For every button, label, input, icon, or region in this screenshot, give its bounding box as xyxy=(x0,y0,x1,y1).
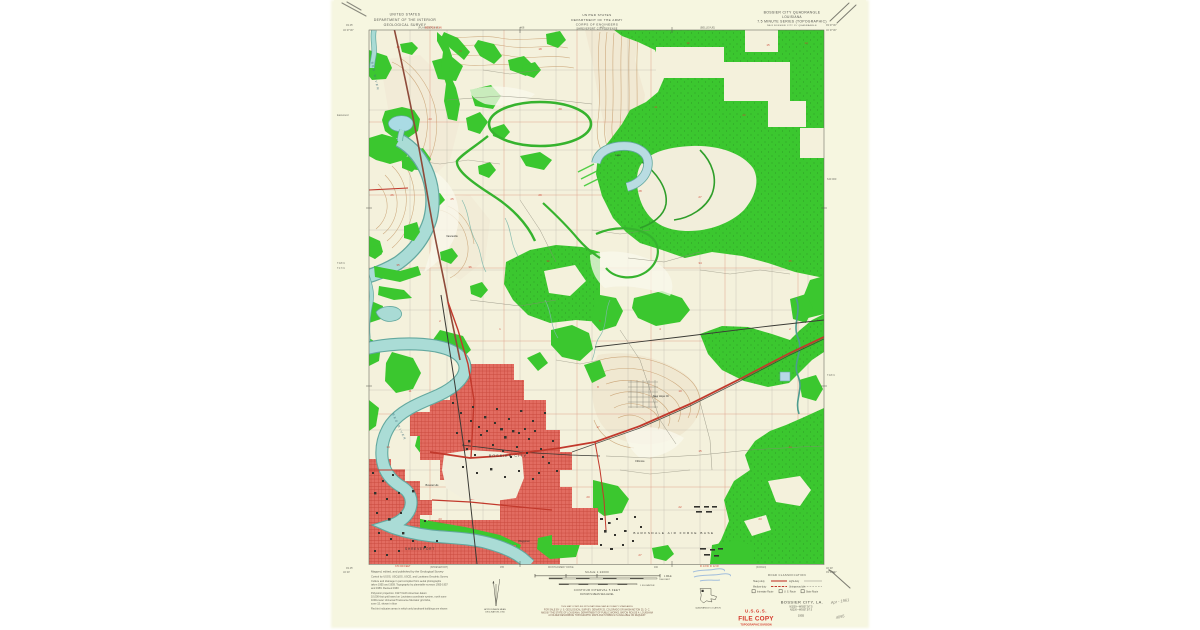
svg-text:FILE COPY: FILE COPY xyxy=(738,615,774,622)
svg-text:10,000-foot grid based on Loui: 10,000-foot grid based on Louisiana coor… xyxy=(371,595,447,599)
svg-text:Waggoner: Waggoner xyxy=(518,539,530,543)
svg-text:Fillmore: Fillmore xyxy=(635,459,645,463)
svg-text:16: 16 xyxy=(686,41,690,45)
svg-text:1000-meter Universal Transvers: 1000-meter Universal Transverse Mercator… xyxy=(371,598,431,602)
svg-text:FOR SALE BY U. S. GEOLOGICAL S: FOR SALE BY U. S. GEOLOGICAL SURVEY, DEN… xyxy=(544,609,650,612)
svg-text:468: 468 xyxy=(520,26,525,30)
svg-text:Control by USGS, USC&GS, USCE,: Control by USGS, USC&GS, USCE, and Louis… xyxy=(371,575,449,579)
svg-text:QUADRANGLE LOCATION: QUADRANGLE LOCATION xyxy=(695,607,721,610)
svg-text:18: 18 xyxy=(538,47,542,51)
svg-text:BOSSIER CITY QUADRANGLE: BOSSIER CITY QUADRANGLE xyxy=(764,11,821,15)
svg-text:27: 27 xyxy=(638,553,642,557)
svg-text:Mapped, edited, and published: Mapped, edited, and published by the Geo… xyxy=(371,570,444,574)
svg-text:taken 1955 and 1959. Topograp: taken 1955 and 1959. Topography by plane… xyxy=(371,583,448,587)
svg-text:34: 34 xyxy=(698,261,702,265)
svg-text:21: 21 xyxy=(654,105,658,109)
svg-text:N3230—W9337.5/7.5: N3230—W9337.5/7.5 xyxy=(790,609,813,611)
svg-text:AND BY THE STATE OF LOUISIANA,: AND BY THE STATE OF LOUISIANA, DEPARTMEN… xyxy=(541,611,653,614)
svg-text:36: 36 xyxy=(468,265,472,269)
svg-text:Light-duty: Light-duty xyxy=(789,580,800,583)
svg-text:T.18 N.: T.18 N. xyxy=(337,261,345,265)
svg-text:32 37'30": 32 37'30" xyxy=(826,28,837,32)
svg-text:28: 28 xyxy=(638,189,642,193)
svg-text:370 000 FEET: 370 000 FEET xyxy=(395,565,411,568)
svg-text:DECLINATION, 1960: DECLINATION, 1960 xyxy=(485,611,505,614)
svg-text:BARKSDALE AIR FORCE BASE: BARKSDALE AIR FORCE BASE xyxy=(633,531,714,535)
svg-text:Unimproved dirt: Unimproved dirt xyxy=(789,586,806,589)
svg-text:32 30': 32 30' xyxy=(343,570,350,574)
svg-text:27: 27 xyxy=(698,195,702,199)
svg-text:7000 FEET: 7000 FEET xyxy=(659,579,671,581)
svg-text:DATUM IS MEAN SEA LEVEL: DATUM IS MEAN SEA LEVEL xyxy=(580,593,614,596)
svg-text:CORPS OF ENGINEERS: CORPS OF ENGINEERS xyxy=(576,23,618,27)
svg-text:23: 23 xyxy=(438,517,442,521)
svg-text:State Route: State Route xyxy=(806,590,819,593)
svg-text:Bossier Hts: Bossier Hts xyxy=(426,483,440,487)
svg-text:Vanceville: Vanceville xyxy=(446,234,458,238)
svg-text:T.18 N.: T.18 N. xyxy=(827,373,835,377)
svg-text:(KORAN): (KORAN) xyxy=(756,566,766,569)
svg-text:A FOLDER DESCRIBING TOPOGRAPHI: A FOLDER DESCRIBING TOPOGRAPHIC MAPS AND… xyxy=(548,614,646,617)
svg-text:New Hope Ch: New Hope Ch xyxy=(653,394,670,398)
svg-text:UNITED STATES: UNITED STATES xyxy=(582,13,611,17)
svg-text:Red tint indicates areas in wh: Red tint indicates areas in which only l… xyxy=(371,607,448,611)
svg-text:460: 460 xyxy=(654,566,659,569)
svg-text:32 30': 32 30' xyxy=(826,566,833,570)
svg-text:THIS MAP COMPLIES WITH NATIONA: THIS MAP COMPLIES WITH NATIONAL MAP ACCU… xyxy=(561,605,633,608)
svg-text:BOSSIER CITY, LA.: BOSSIER CITY, LA. xyxy=(781,600,824,605)
svg-text:Eastwood: Eastwood xyxy=(337,113,349,117)
svg-text:20: 20 xyxy=(558,107,562,111)
svg-text:11: 11 xyxy=(408,389,411,393)
svg-text:BOSSIER CITY: BOSSIER CITY xyxy=(489,454,527,458)
svg-text:14: 14 xyxy=(804,41,808,45)
svg-text:SHREVEPORT: SHREVEPORT xyxy=(405,547,435,551)
svg-text:T.17 N.: T.17 N. xyxy=(337,266,345,270)
svg-text:1955: 1955 xyxy=(798,613,805,617)
svg-text:93 45': 93 45' xyxy=(346,566,353,570)
svg-text:20: 20 xyxy=(586,495,590,499)
svg-text:1 KILOMETER: 1 KILOMETER xyxy=(640,585,655,587)
svg-text:NE/4 BOSSIER CITY 15' QUADRANG: NE/4 BOSSIER CITY 15' QUADRANGLE xyxy=(767,24,817,27)
svg-text:ROAD CLASSIFICATION: ROAD CLASSIFICATION xyxy=(768,573,806,577)
svg-text:Culture and drainage in part c: Culture and drainage in part compiled fr… xyxy=(371,579,442,583)
svg-text:TOPOGRAPHIC DIVISION: TOPOGRAPHIC DIVISION xyxy=(740,622,771,626)
svg-text:17: 17 xyxy=(596,425,600,429)
svg-text:LOUISIANA: LOUISIANA xyxy=(782,15,802,19)
svg-text:1 MILE: 1 MILE xyxy=(664,575,672,578)
svg-text:35: 35 xyxy=(396,263,400,267)
svg-text:DEPARTMENT OF THE INTERIOR: DEPARTMENT OF THE INTERIOR xyxy=(374,18,437,22)
svg-text:23: 23 xyxy=(758,517,762,521)
svg-text:22: 22 xyxy=(742,113,746,117)
svg-text:15: 15 xyxy=(698,449,702,453)
svg-text:U. S. Route: U. S. Route xyxy=(784,590,797,593)
svg-text:93 45': 93 45' xyxy=(346,23,353,27)
svg-text:469: 469 xyxy=(600,26,605,30)
svg-text:DEPARTMENT OF THE ARMY: DEPARTMENT OF THE ARMY xyxy=(571,18,623,22)
svg-text:N3230—W9337.5/7.5: N3230—W9337.5/7.5 xyxy=(790,605,814,608)
svg-text:25: 25 xyxy=(450,197,454,201)
svg-text:Medium-duty: Medium-duty xyxy=(753,586,767,589)
svg-text:13: 13 xyxy=(788,445,792,449)
svg-text:R. 13 W. R. 12 W.: R. 13 W. R. 12 W. xyxy=(700,565,719,568)
svg-text:APPROXIMATE MEAN: APPROXIMATE MEAN xyxy=(484,608,506,611)
svg-text:35: 35 xyxy=(788,259,792,263)
svg-text:(BELLEVUE): (BELLEVUE) xyxy=(700,26,715,30)
svg-text:Heavy-duty: Heavy-duty xyxy=(753,580,765,583)
svg-text:and 1959. Revised 1960: and 1959. Revised 1960 xyxy=(371,586,399,590)
svg-text:SCALE 1:24000: SCALE 1:24000 xyxy=(585,570,609,574)
svg-text:Interstate Route: Interstate Route xyxy=(757,590,774,593)
svg-text:13: 13 xyxy=(458,49,462,53)
svg-text:32: 32 xyxy=(546,259,550,263)
svg-text:BENTON 14 MI.: BENTON 14 MI. xyxy=(425,26,443,29)
svg-text:29: 29 xyxy=(538,193,542,197)
svg-text:455: 455 xyxy=(500,566,505,569)
svg-text:UNITED STATES: UNITED STATES xyxy=(390,13,421,17)
svg-text:Polyconic projection. 1927 No: Polyconic projection. 1927 North America… xyxy=(371,591,427,595)
svg-text:14: 14 xyxy=(396,45,400,49)
svg-text:26: 26 xyxy=(390,193,394,197)
svg-text:MONTGOMERY DRIVE: MONTGOMERY DRIVE xyxy=(548,566,574,569)
svg-text:93 37'30": 93 37'30" xyxy=(826,23,837,27)
svg-text:640 000: 640 000 xyxy=(827,177,837,181)
svg-text:7.5 MINUTE SERIES (TOPOGRAPHIC: 7.5 MINUTE SERIES (TOPOGRAPHIC) xyxy=(757,20,827,24)
svg-text:CONTOUR INTERVAL 5 FEET: CONTOUR INTERVAL 5 FEET xyxy=(574,588,621,592)
svg-text:Lake: Lake xyxy=(615,153,621,157)
svg-text:14: 14 xyxy=(386,445,390,449)
svg-text:22: 22 xyxy=(678,505,682,509)
svg-text:23: 23 xyxy=(428,117,432,121)
svg-text:15: 15 xyxy=(766,43,770,47)
svg-text:32 37'30": 32 37'30" xyxy=(343,28,354,32)
svg-text:zone 15, shown in blue: zone 15, shown in blue xyxy=(371,602,398,606)
svg-text:U.S.G.S.: U.S.G.S. xyxy=(745,609,767,614)
svg-text:10: 10 xyxy=(678,389,682,393)
